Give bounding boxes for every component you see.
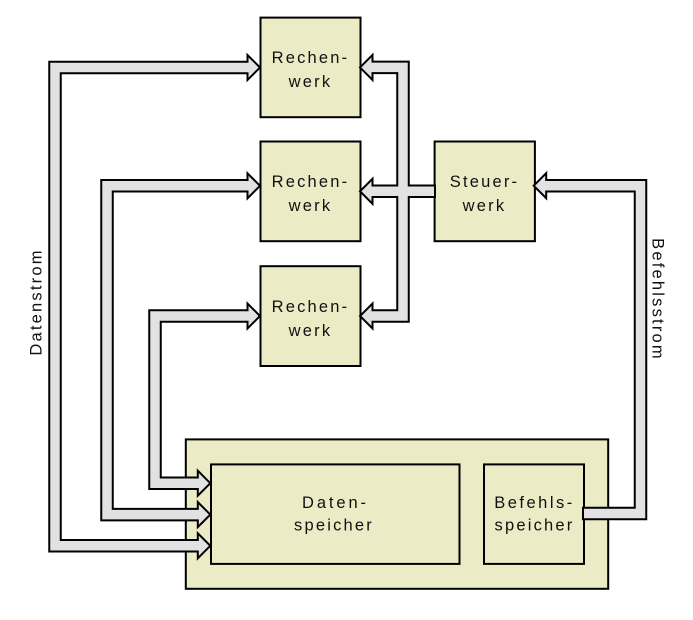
svg-text:Datenstrom: Datenstrom	[28, 248, 46, 355]
svg-text:speicher: speicher	[294, 517, 374, 535]
svg-text:speicher: speicher	[495, 517, 575, 535]
svg-text:Rechen-: Rechen-	[272, 173, 350, 191]
svg-text:werk: werk	[462, 197, 507, 215]
svg-text:werk: werk	[288, 197, 333, 215]
svg-text:werk: werk	[288, 73, 333, 91]
svg-text:Befehlsstrom: Befehlsstrom	[649, 238, 667, 361]
svg-text:Rechen-: Rechen-	[272, 49, 350, 67]
svg-text:werk: werk	[288, 322, 333, 340]
svg-text:Rechen-: Rechen-	[272, 298, 350, 316]
svg-text:Befehls-: Befehls-	[494, 494, 575, 512]
svg-text:Daten-: Daten-	[302, 494, 369, 512]
svg-text:Steuer-: Steuer-	[450, 173, 520, 191]
